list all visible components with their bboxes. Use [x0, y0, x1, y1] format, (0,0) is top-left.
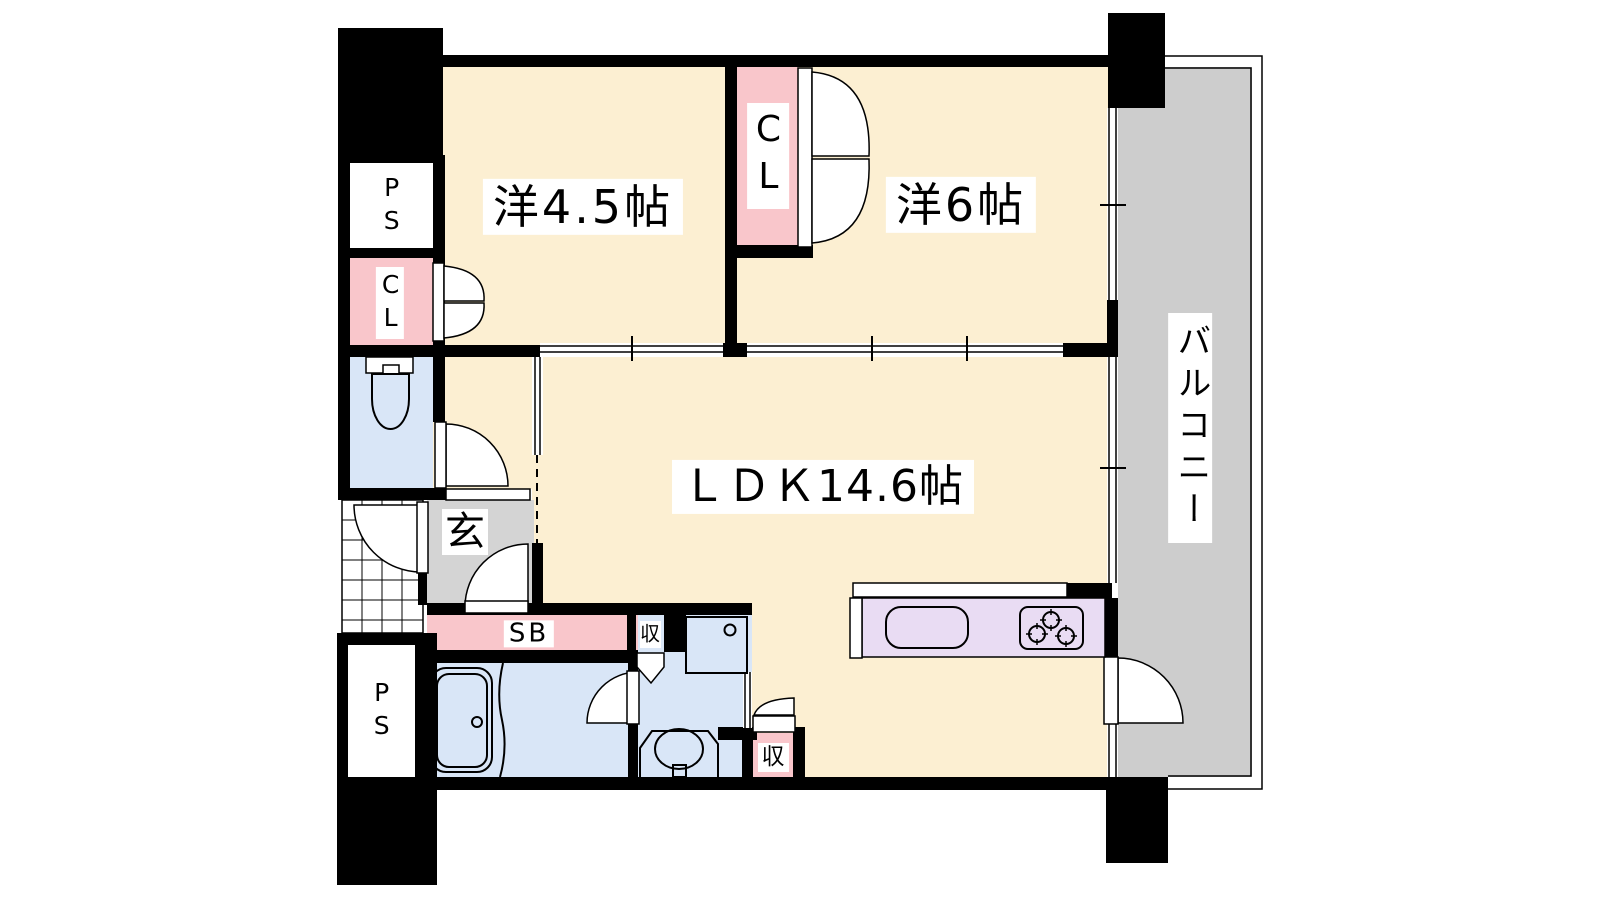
toilet-flush-detail	[383, 365, 399, 374]
wall-ps-top	[350, 155, 433, 163]
label-storage-ldk: 収	[762, 745, 785, 769]
label-storage-washroom: 収	[640, 624, 660, 645]
wall-right-kitchen	[1105, 598, 1118, 658]
wall-basin-storage	[718, 727, 757, 740]
label-entrance: 玄	[442, 509, 488, 555]
wall-partition-lower	[532, 543, 543, 607]
kitchen-sink	[886, 607, 968, 648]
wall-storage-washroom-right	[664, 615, 686, 652]
wall-right-corner	[1107, 300, 1118, 357]
wall-between-bedrooms	[725, 67, 737, 345]
wall-psb-top	[337, 633, 437, 645]
wall-top	[443, 55, 1112, 67]
wall-ps-cl-divider	[350, 248, 433, 258]
label-pipe-space-bottom: PS	[368, 678, 394, 744]
room-label-balcony: バルコニー	[1168, 313, 1212, 543]
wall-slider-pier-left	[723, 343, 747, 357]
storage-ldk-door-strip	[753, 716, 795, 732]
label-closet-left: CL	[376, 267, 404, 339]
genkan-ldk-door-leaf	[465, 601, 528, 613]
wall-under-entry-door	[418, 572, 427, 605]
floor-plan: 洋4.5帖 洋6帖 ＬＤＫ14.6帖 バルコニー CL CL PS PS 玄 S…	[0, 0, 1600, 900]
balcony-door-leaf	[1104, 657, 1118, 724]
label-closet-top: CL	[747, 103, 789, 209]
floor-plan-drawing	[0, 0, 1600, 900]
closet-left-door-strip	[433, 263, 444, 341]
genkan-step-strip	[446, 489, 530, 500]
room-label-bedroom6: 洋6帖	[886, 177, 1036, 233]
wall-left	[338, 155, 350, 500]
wall-storage-ldk-right	[793, 727, 805, 777]
room-label-bedroom45: 洋4.5帖	[483, 179, 683, 235]
wall-psb-right	[415, 645, 437, 777]
label-pipe-space-top: PS	[378, 173, 404, 239]
wall-bath-wash-divider-bottom	[628, 723, 638, 777]
toilet-door-leaf	[435, 422, 446, 488]
wall-block-bottom-left	[337, 777, 437, 885]
wall-psb-left	[337, 645, 348, 777]
wall-sb-storage-divider	[627, 615, 636, 652]
partition-hall-gap	[532, 357, 543, 455]
closet-mid-door-strip	[798, 68, 812, 247]
wall-bathroom-top	[427, 650, 638, 663]
wall-bottom	[427, 777, 1118, 790]
wall-block-top-right	[1108, 13, 1165, 108]
label-shoe-box: SB	[504, 620, 554, 647]
wall-toilet-bottom	[338, 488, 446, 500]
kitchen-backsplash	[853, 583, 1067, 597]
wall-block-top-left	[338, 28, 443, 155]
kitchen-end-panel	[850, 598, 862, 658]
wall-kitchen-block	[1067, 583, 1112, 598]
room-label-ldk: ＬＤＫ14.6帖	[672, 460, 974, 514]
entrance-door-leaf	[417, 502, 428, 573]
wall-washroom-right-lower	[742, 740, 753, 777]
wall-toilet-right	[433, 355, 445, 422]
bathroom-door-leaf	[627, 671, 639, 724]
